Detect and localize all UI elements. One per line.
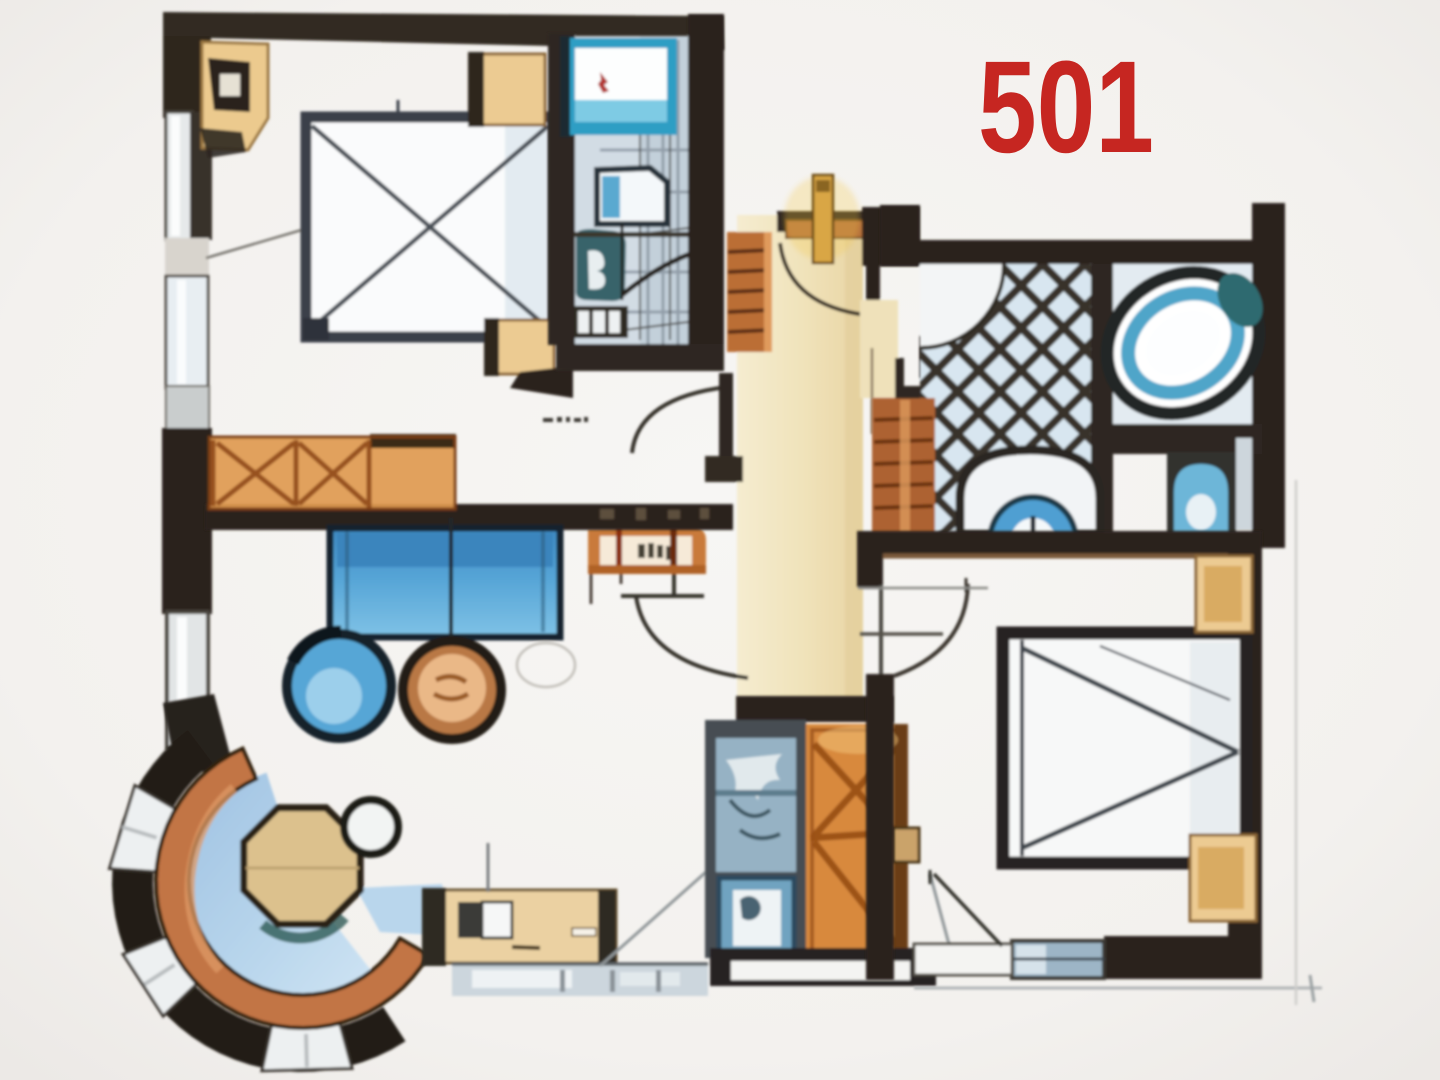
svg-text:501: 501 <box>978 33 1154 180</box>
